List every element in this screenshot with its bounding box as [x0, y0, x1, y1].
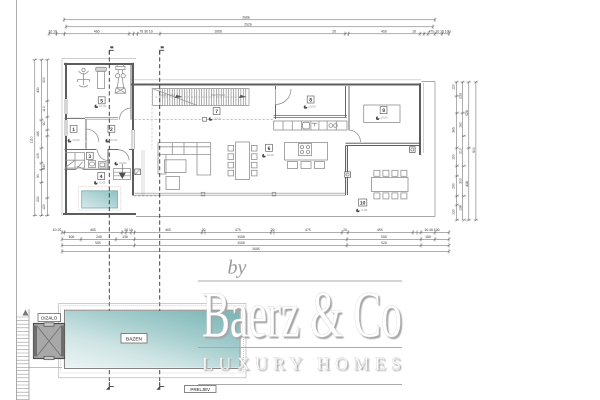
- svg-text:520: 520: [381, 241, 387, 245]
- svg-text:20 10: 20 10: [124, 228, 133, 232]
- svg-text:DIZALO: DIZALO: [41, 316, 57, 321]
- svg-text:20: 20: [343, 228, 347, 232]
- svg-text:18x17,5/28: 18x17,5/28: [211, 93, 226, 97]
- svg-text:±0,00: ±0,00: [72, 138, 80, 142]
- svg-text:405: 405: [90, 228, 96, 232]
- svg-text:130: 130: [122, 235, 128, 239]
- svg-text:18x17,5/28: 18x17,5/28: [161, 93, 176, 97]
- svg-text:1500: 1500: [237, 235, 245, 239]
- svg-text:20: 20: [332, 29, 336, 33]
- svg-text:900: 900: [472, 147, 476, 153]
- svg-text:10: 10: [412, 29, 416, 33]
- svg-text:500: 500: [381, 235, 387, 239]
- svg-text:465: 465: [165, 228, 171, 232]
- svg-text:438: 438: [465, 181, 469, 187]
- svg-text:10 10 100: 10 10 100: [435, 29, 450, 33]
- svg-text:4: 4: [100, 174, 103, 180]
- svg-text:505: 505: [95, 241, 101, 245]
- svg-text:±0,00: ±0,00: [110, 138, 118, 142]
- svg-text:240: 240: [96, 235, 102, 239]
- svg-text:±0,00: ±0,00: [213, 117, 221, 121]
- svg-text:90: 90: [36, 174, 40, 178]
- svg-text:233: 233: [459, 93, 463, 99]
- svg-text:138: 138: [459, 205, 463, 211]
- svg-text:475: 475: [429, 29, 435, 33]
- svg-text:10: 10: [360, 201, 366, 207]
- svg-text:450: 450: [94, 29, 100, 33]
- svg-text:±0,00: ±0,00: [381, 116, 389, 120]
- svg-text:Baerz & Co: Baerz & Co: [202, 279, 402, 352]
- svg-text:120: 120: [452, 84, 456, 90]
- svg-text:-0,42: -0,42: [99, 180, 106, 184]
- svg-text:455: 455: [377, 228, 383, 232]
- svg-text:300: 300: [459, 178, 463, 184]
- svg-text:8: 8: [309, 98, 312, 104]
- svg-text:290: 290: [452, 183, 456, 189]
- svg-text:130: 130: [452, 209, 456, 215]
- svg-text:1500: 1500: [237, 241, 245, 245]
- svg-text:±0,00: ±0,00: [308, 105, 316, 109]
- svg-text:210: 210: [459, 148, 463, 154]
- svg-text:10 10: 10 10: [48, 29, 57, 33]
- svg-text:1: 1: [72, 127, 75, 133]
- svg-text:1110: 1110: [29, 136, 33, 143]
- svg-text:2: 2: [110, 127, 113, 133]
- svg-text:20: 20: [271, 228, 275, 232]
- svg-text:430: 430: [36, 87, 40, 93]
- svg-text:100: 100: [425, 235, 431, 239]
- svg-text:105: 105: [36, 153, 40, 159]
- svg-text:70 30 10: 70 30 10: [139, 29, 152, 33]
- svg-text:300: 300: [42, 77, 46, 83]
- svg-text:6: 6: [268, 146, 271, 152]
- svg-text:195: 195: [36, 131, 40, 137]
- svg-text:475: 475: [305, 228, 311, 232]
- svg-text:2526: 2526: [244, 22, 252, 26]
- svg-text:1000: 1000: [214, 29, 222, 33]
- svg-text:120: 120: [42, 204, 46, 210]
- svg-text:110: 110: [42, 106, 46, 112]
- svg-text:2605: 2605: [252, 247, 260, 251]
- svg-text:±0,00: ±0,00: [267, 153, 275, 157]
- svg-text:10 25: 10 25: [53, 228, 62, 232]
- svg-text:90: 90: [42, 122, 46, 126]
- svg-text:-0,05: -0,05: [361, 208, 368, 212]
- svg-text:BAZEN: BAZEN: [126, 336, 143, 342]
- svg-text:528: 528: [465, 110, 469, 116]
- svg-text:475: 475: [235, 228, 241, 232]
- svg-text:3: 3: [88, 154, 91, 160]
- svg-text:450: 450: [381, 29, 387, 33]
- svg-text:7: 7: [215, 109, 218, 115]
- svg-text:by: by: [228, 257, 247, 279]
- svg-text:±0,00: ±0,00: [99, 104, 107, 108]
- svg-text:150: 150: [452, 154, 456, 160]
- svg-text:9: 9: [382, 108, 385, 114]
- svg-text:20: 20: [202, 228, 206, 232]
- svg-text:365: 365: [452, 127, 456, 133]
- svg-text:160: 160: [459, 122, 463, 128]
- svg-text:440: 440: [42, 164, 46, 170]
- svg-text:100: 100: [69, 235, 75, 239]
- svg-text:PRELJEV: PRELJEV: [190, 387, 210, 392]
- svg-text:230: 230: [36, 196, 40, 202]
- svg-text:20 40 100: 20 40 100: [424, 228, 439, 232]
- svg-text:2606: 2606: [242, 15, 250, 19]
- svg-text:±0,00: ±0,00: [119, 161, 127, 165]
